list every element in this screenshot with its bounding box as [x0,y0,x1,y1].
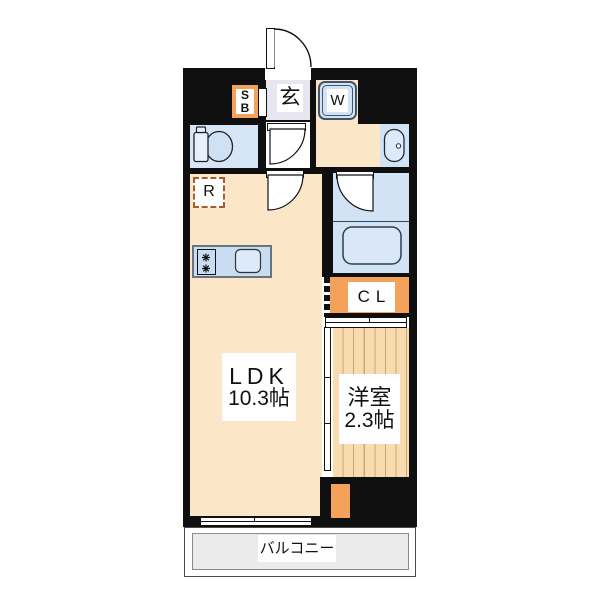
shoebox-label-line2: B [241,102,250,115]
shoebox-door [258,88,267,117]
shoebox-box: S B [232,85,258,118]
wall-above-closet [322,273,417,277]
balcony-window-midline [201,521,311,522]
ldk-door-panel [266,170,304,178]
wall-entrance-right [310,80,316,168]
closet-front-door-tick [369,318,370,322]
toilet-room-floor [189,125,258,168]
wall-block-top-right [358,80,409,124]
balcony-window [200,517,312,526]
washbasin-floor [380,124,409,169]
entrance-door-arc [275,29,312,67]
balcony-label: バルコニー [258,535,336,562]
western-room-name: 洋室 [347,386,391,409]
closet-front-door-midline [326,322,406,323]
washer-label: W [327,89,348,112]
ldk-floor [190,168,322,517]
wall-vestibule-left [258,118,266,168]
ldk-label: LDK 10.3帖 [222,353,296,421]
closet-front-door [325,317,407,328]
entrance-door-panel [266,28,275,69]
pillar-orange [331,484,350,518]
bathroom-divider-line [333,221,409,222]
floor-plan: S B 玄 W R CL LDK 10.3帖 洋室 2.3帖 バルコニー [0,0,600,600]
stove-box [197,249,216,275]
hallway-floor-lower [314,124,380,169]
sliding-door-ldk-western [324,327,332,471]
vestibule-door-panel [267,123,306,131]
sliding-door-tick-1 [325,377,330,378]
closet-label: CL [348,282,395,312]
sliding-door-tick-2 [325,423,330,424]
shoebox-label-line1: S [241,89,249,102]
bathroom-floor [333,173,409,273]
western-room-label: 洋室 2.3帖 [339,374,400,444]
balcony-window-tick [254,518,255,521]
entrance-doorway-gap [265,68,311,80]
closet-side-door [324,277,330,317]
ldk-size: 10.3帖 [228,388,290,410]
entrance-label: 玄 [277,84,303,112]
wall-divider-mid [322,167,333,277]
wall-left [183,68,190,527]
refrigerator-box: R [193,177,225,208]
bathroom-door-panel [336,171,374,179]
ldk-name: LDK [229,364,289,388]
western-room-size: 2.3帖 [344,410,394,432]
